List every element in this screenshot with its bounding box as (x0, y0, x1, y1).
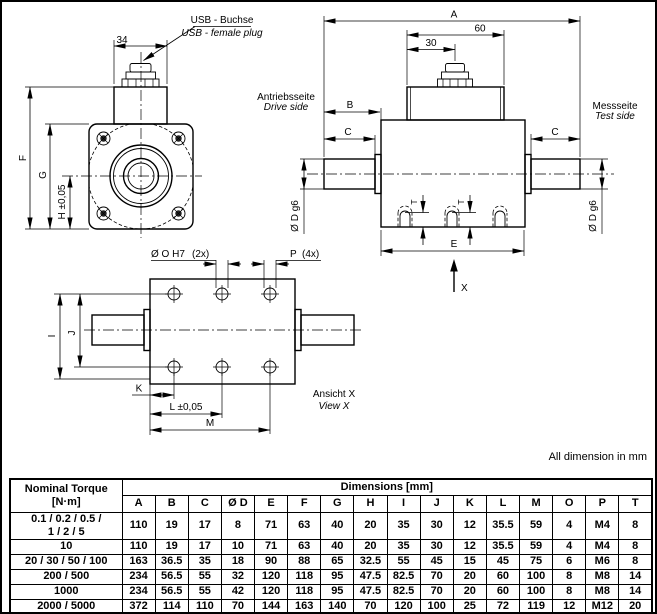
thread-hole-label: P (290, 249, 297, 260)
dim-value-cell: 12 (453, 539, 486, 554)
screw-icon (97, 207, 110, 220)
table-row: 100023456.555421201189547.582.5702060100… (10, 584, 652, 599)
table-row: 101101917107163402035301235.5594M48 (10, 539, 652, 554)
dim-value-cell: 4 (553, 512, 586, 539)
dim-value-cell: 88 (288, 554, 321, 569)
dim-value-cell: 144 (255, 599, 288, 614)
dim-column-header: F (288, 495, 321, 512)
dim-t2-label: T (456, 199, 466, 204)
dim-column-header: P (586, 495, 619, 512)
thread-hole-count: (4x) (302, 249, 319, 260)
dim-value-cell: 35 (188, 554, 221, 569)
dim-value-cell: 20 (453, 569, 486, 584)
dim-value-cell: 18 (221, 554, 254, 569)
torque-cell: 20 / 30 / 50 / 100 (10, 554, 122, 569)
dim-value-cell: 372 (122, 599, 155, 614)
dim-value-cell: 110 (122, 539, 155, 554)
dim-value-cell: 32 (221, 569, 254, 584)
drive-side-label-en: Drive side (264, 102, 309, 113)
dim-value-cell: 30 (420, 539, 453, 554)
dim-value-cell: 163 (288, 599, 321, 614)
dim-l-label: L ±0,05 (170, 402, 203, 413)
dim-value-cell: 12 (553, 599, 586, 614)
dim-value-cell: M4 (586, 539, 619, 554)
dim-value-cell: 40 (321, 512, 354, 539)
view-name-en: View X (319, 401, 350, 412)
technical-drawing: 34 USB - Buchse USB - female plug F G H … (2, 2, 657, 474)
dim-value-cell: 110 (188, 599, 221, 614)
dim-value-cell: 163 (122, 554, 155, 569)
dim-value-cell: 71 (255, 539, 288, 554)
dim-34-label: 34 (116, 35, 128, 46)
dim-value-cell: 120 (255, 584, 288, 599)
dim-value-cell: 60 (486, 584, 519, 599)
dim-value-cell: 10 (221, 539, 254, 554)
dim-value-cell: 70 (221, 599, 254, 614)
dim-column-header: K (453, 495, 486, 512)
usb-plug-cap-side (446, 64, 465, 73)
view-name-de: Ansicht X (313, 389, 356, 400)
dim-value-cell: 70 (420, 584, 453, 599)
torque-cell: 1000 (10, 584, 122, 599)
dim-value-cell: 19 (155, 512, 188, 539)
dim-value-cell: 70 (420, 569, 453, 584)
dim-value-cell: 8 (553, 569, 586, 584)
dim-value-cell: M8 (586, 584, 619, 599)
dim-value-cell: 12 (453, 512, 486, 539)
table-row: 2000 / 500037211411070144163140701201002… (10, 599, 652, 614)
dim-value-cell: 55 (387, 554, 420, 569)
dowel-hole-label: Ø O H7 (151, 249, 185, 260)
dimension-table-body: 0.1 / 0.2 / 0.5 / 1 / 2 / 51101917871634… (10, 512, 652, 614)
dim-value-cell: 35.5 (486, 539, 519, 554)
dim-value-cell: 75 (520, 554, 553, 569)
dim-value-cell: 56.5 (155, 569, 188, 584)
dim-value-cell: 100 (520, 584, 553, 599)
dim-g-label: G (38, 171, 49, 179)
dim-value-cell: 118 (288, 569, 321, 584)
dim-value-cell: 60 (486, 569, 519, 584)
dim-value-cell: 100 (520, 569, 553, 584)
dim-column-header: J (420, 495, 453, 512)
dim-column-header: G (321, 495, 354, 512)
table-row: 0.1 / 0.2 / 0.5 / 1 / 2 / 51101917871634… (10, 512, 652, 539)
dim-value-cell: 35 (387, 539, 420, 554)
dim-value-cell: 17 (188, 539, 221, 554)
tapped-hole (447, 211, 457, 227)
dim-value-cell: 17 (188, 512, 221, 539)
table-row: 200 / 50023456.555321201189547.582.57020… (10, 569, 652, 584)
usb-plug-mid-side (442, 72, 469, 79)
torque-cell: 0.1 / 0.2 / 0.5 / 1 / 2 / 5 (10, 512, 122, 539)
shaft-dia-right-label: Ø D g6 (588, 200, 599, 232)
units-note: All dimension in mm (549, 451, 647, 463)
dim-value-cell: 55 (188, 584, 221, 599)
dim-m-label: M (206, 418, 214, 429)
dim-value-cell: 20 (354, 512, 387, 539)
dim-value-cell: 120 (387, 599, 420, 614)
dim-value-cell: 6 (553, 554, 586, 569)
torque-column-header: Nominal Torque [N·m] (10, 479, 122, 512)
screw-icon (172, 132, 185, 145)
dim-value-cell: 70 (354, 599, 387, 614)
dim-value-cell: 20 (453, 584, 486, 599)
dim-j-label: J (67, 331, 78, 336)
dowel-hole-count: (2x) (192, 249, 209, 260)
dim-column-header: T (619, 495, 652, 512)
dim-column-header: L (486, 495, 519, 512)
dim-value-cell: 47.5 (354, 569, 387, 584)
dim-column-header: M (520, 495, 553, 512)
dim-value-cell: 71 (255, 512, 288, 539)
dim-ij-extensions (54, 294, 168, 379)
view-direction-arrow: X (450, 259, 468, 294)
dim-bc-extensions (375, 108, 381, 154)
dimensions-group-header: Dimensions [mm] (122, 479, 652, 495)
usb-plug-ridges (128, 80, 153, 87)
dim-c-right-label: C (551, 127, 558, 138)
dim-value-cell: M12 (586, 599, 619, 614)
tapped-hole (495, 211, 505, 227)
screw-icon (172, 207, 185, 220)
mounting-holes (165, 285, 279, 376)
dim-value-cell: 36.5 (155, 554, 188, 569)
dim-value-cell: 8 (619, 539, 652, 554)
dim-k-label: K (136, 384, 143, 395)
dim-value-cell: 59 (520, 512, 553, 539)
usb-housing-front (114, 87, 167, 124)
dim-value-cell: 82.5 (387, 584, 420, 599)
dim-c-left-label: C (344, 127, 351, 138)
dim-value-cell: 8 (619, 554, 652, 569)
thread-depth-dims: T T (405, 195, 476, 245)
usb-housing-side (407, 87, 504, 120)
dim-value-cell: 95 (321, 569, 354, 584)
dim-value-cell: 35.5 (486, 512, 519, 539)
dim-value-cell: 32.5 (354, 554, 387, 569)
dim-value-cell: 59 (520, 539, 553, 554)
datasheet-page: 34 USB - Buchse USB - female plug F G H … (0, 0, 657, 614)
dim-value-cell: 65 (321, 554, 354, 569)
dim-30-label: 30 (425, 38, 437, 49)
dim-value-cell: M4 (586, 512, 619, 539)
dim-value-cell: 35 (387, 512, 420, 539)
dim-column-header: A (122, 495, 155, 512)
torque-cell: 10 (10, 539, 122, 554)
dim-value-cell: 40 (321, 539, 354, 554)
dim-value-cell: 47.5 (354, 584, 387, 599)
dim-value-cell: 42 (221, 584, 254, 599)
dim-value-cell: M8 (586, 569, 619, 584)
dim-value-cell: 45 (420, 554, 453, 569)
housing-edge-lines (411, 87, 501, 120)
dim-value-cell: 110 (122, 512, 155, 539)
dim-value-cell: 20 (354, 539, 387, 554)
dim-column-header: Ø D (221, 495, 254, 512)
front-view: 34 USB - Buchse USB - female plug F G H … (18, 15, 263, 238)
dim-value-cell: 19 (155, 539, 188, 554)
usb-plug-base (122, 79, 159, 87)
dim-value-cell: 72 (486, 599, 519, 614)
dim-value-cell: 8 (553, 584, 586, 599)
dim-value-cell: 63 (288, 512, 321, 539)
dim-column-header: C (188, 495, 221, 512)
dim-value-cell: 15 (453, 554, 486, 569)
dim-value-cell: 20 (619, 599, 652, 614)
dim-value-cell: 234 (122, 584, 155, 599)
view-x-label: X (461, 283, 468, 294)
sensor-body-bottom (150, 279, 295, 384)
tapped-hole (400, 211, 410, 227)
dim-value-cell: 8 (221, 512, 254, 539)
dim-value-cell: 55 (188, 569, 221, 584)
usb-plug-cap (130, 64, 151, 73)
dim-value-cell: 140 (321, 599, 354, 614)
usb-plug-ridges-side (443, 80, 466, 87)
dim-column-header: H (354, 495, 387, 512)
bottom-view: Ø O H7 (2x) P (4x) I J K L ±0,05 M Ansic… (47, 249, 362, 435)
torque-cell: 200 / 500 (10, 569, 122, 584)
dim-value-cell: 30 (420, 512, 453, 539)
dim-value-cell: 4 (553, 539, 586, 554)
dim-column-header: E (255, 495, 288, 512)
dim-column-header: I (387, 495, 420, 512)
dim-column-header: B (155, 495, 188, 512)
dim-e-label: E (451, 239, 458, 250)
dim-value-cell: 14 (619, 569, 652, 584)
dim-value-cell: 100 (420, 599, 453, 614)
dim-value-cell: 234 (122, 569, 155, 584)
dim-value-cell: 25 (453, 599, 486, 614)
dim-t1-label: T (409, 199, 419, 204)
dim-b-label: B (347, 100, 354, 111)
dim-value-cell: 82.5 (387, 569, 420, 584)
torque-cell: 2000 / 5000 (10, 599, 122, 614)
usb-label-de: USB - Buchse (191, 15, 254, 26)
arrow-up-icon (450, 259, 458, 272)
shaft-dia-left-label: Ø D g6 (290, 200, 301, 232)
dim-value-cell: 114 (155, 599, 188, 614)
dim-value-cell: 14 (619, 584, 652, 599)
dim-value-cell: 45 (486, 554, 519, 569)
dim-value-cell: M6 (586, 554, 619, 569)
dim-34-extensions (114, 40, 167, 84)
screw-icon (97, 132, 110, 145)
dim-60-extensions (407, 30, 504, 85)
dim-h-label: H ±0,05 (57, 184, 68, 219)
dim-value-cell: 119 (520, 599, 553, 614)
dim-f-label: F (18, 155, 29, 161)
dim-a-label: A (451, 10, 458, 21)
usb-label-en: USB - female plug (181, 28, 263, 39)
dim-value-cell: 120 (255, 569, 288, 584)
dim-value-cell: 63 (288, 539, 321, 554)
dim-value-cell: 118 (288, 584, 321, 599)
dim-column-header: O (553, 495, 586, 512)
dim-value-cell: 95 (321, 584, 354, 599)
dim-i-label: I (47, 335, 58, 338)
dim-value-cell: 56.5 (155, 584, 188, 599)
dim-value-cell: 8 (619, 512, 652, 539)
dim-value-cell: 90 (255, 554, 288, 569)
dimensions-table: Nominal Torque [N·m] Dimensions [mm] ABC… (9, 478, 653, 614)
table-row: 20 / 30 / 50 / 10016336.5351890886532.55… (10, 554, 652, 569)
dim-60-label: 60 (474, 24, 486, 35)
test-side-label-en: Test side (595, 111, 635, 122)
tapped-holes (398, 206, 507, 227)
